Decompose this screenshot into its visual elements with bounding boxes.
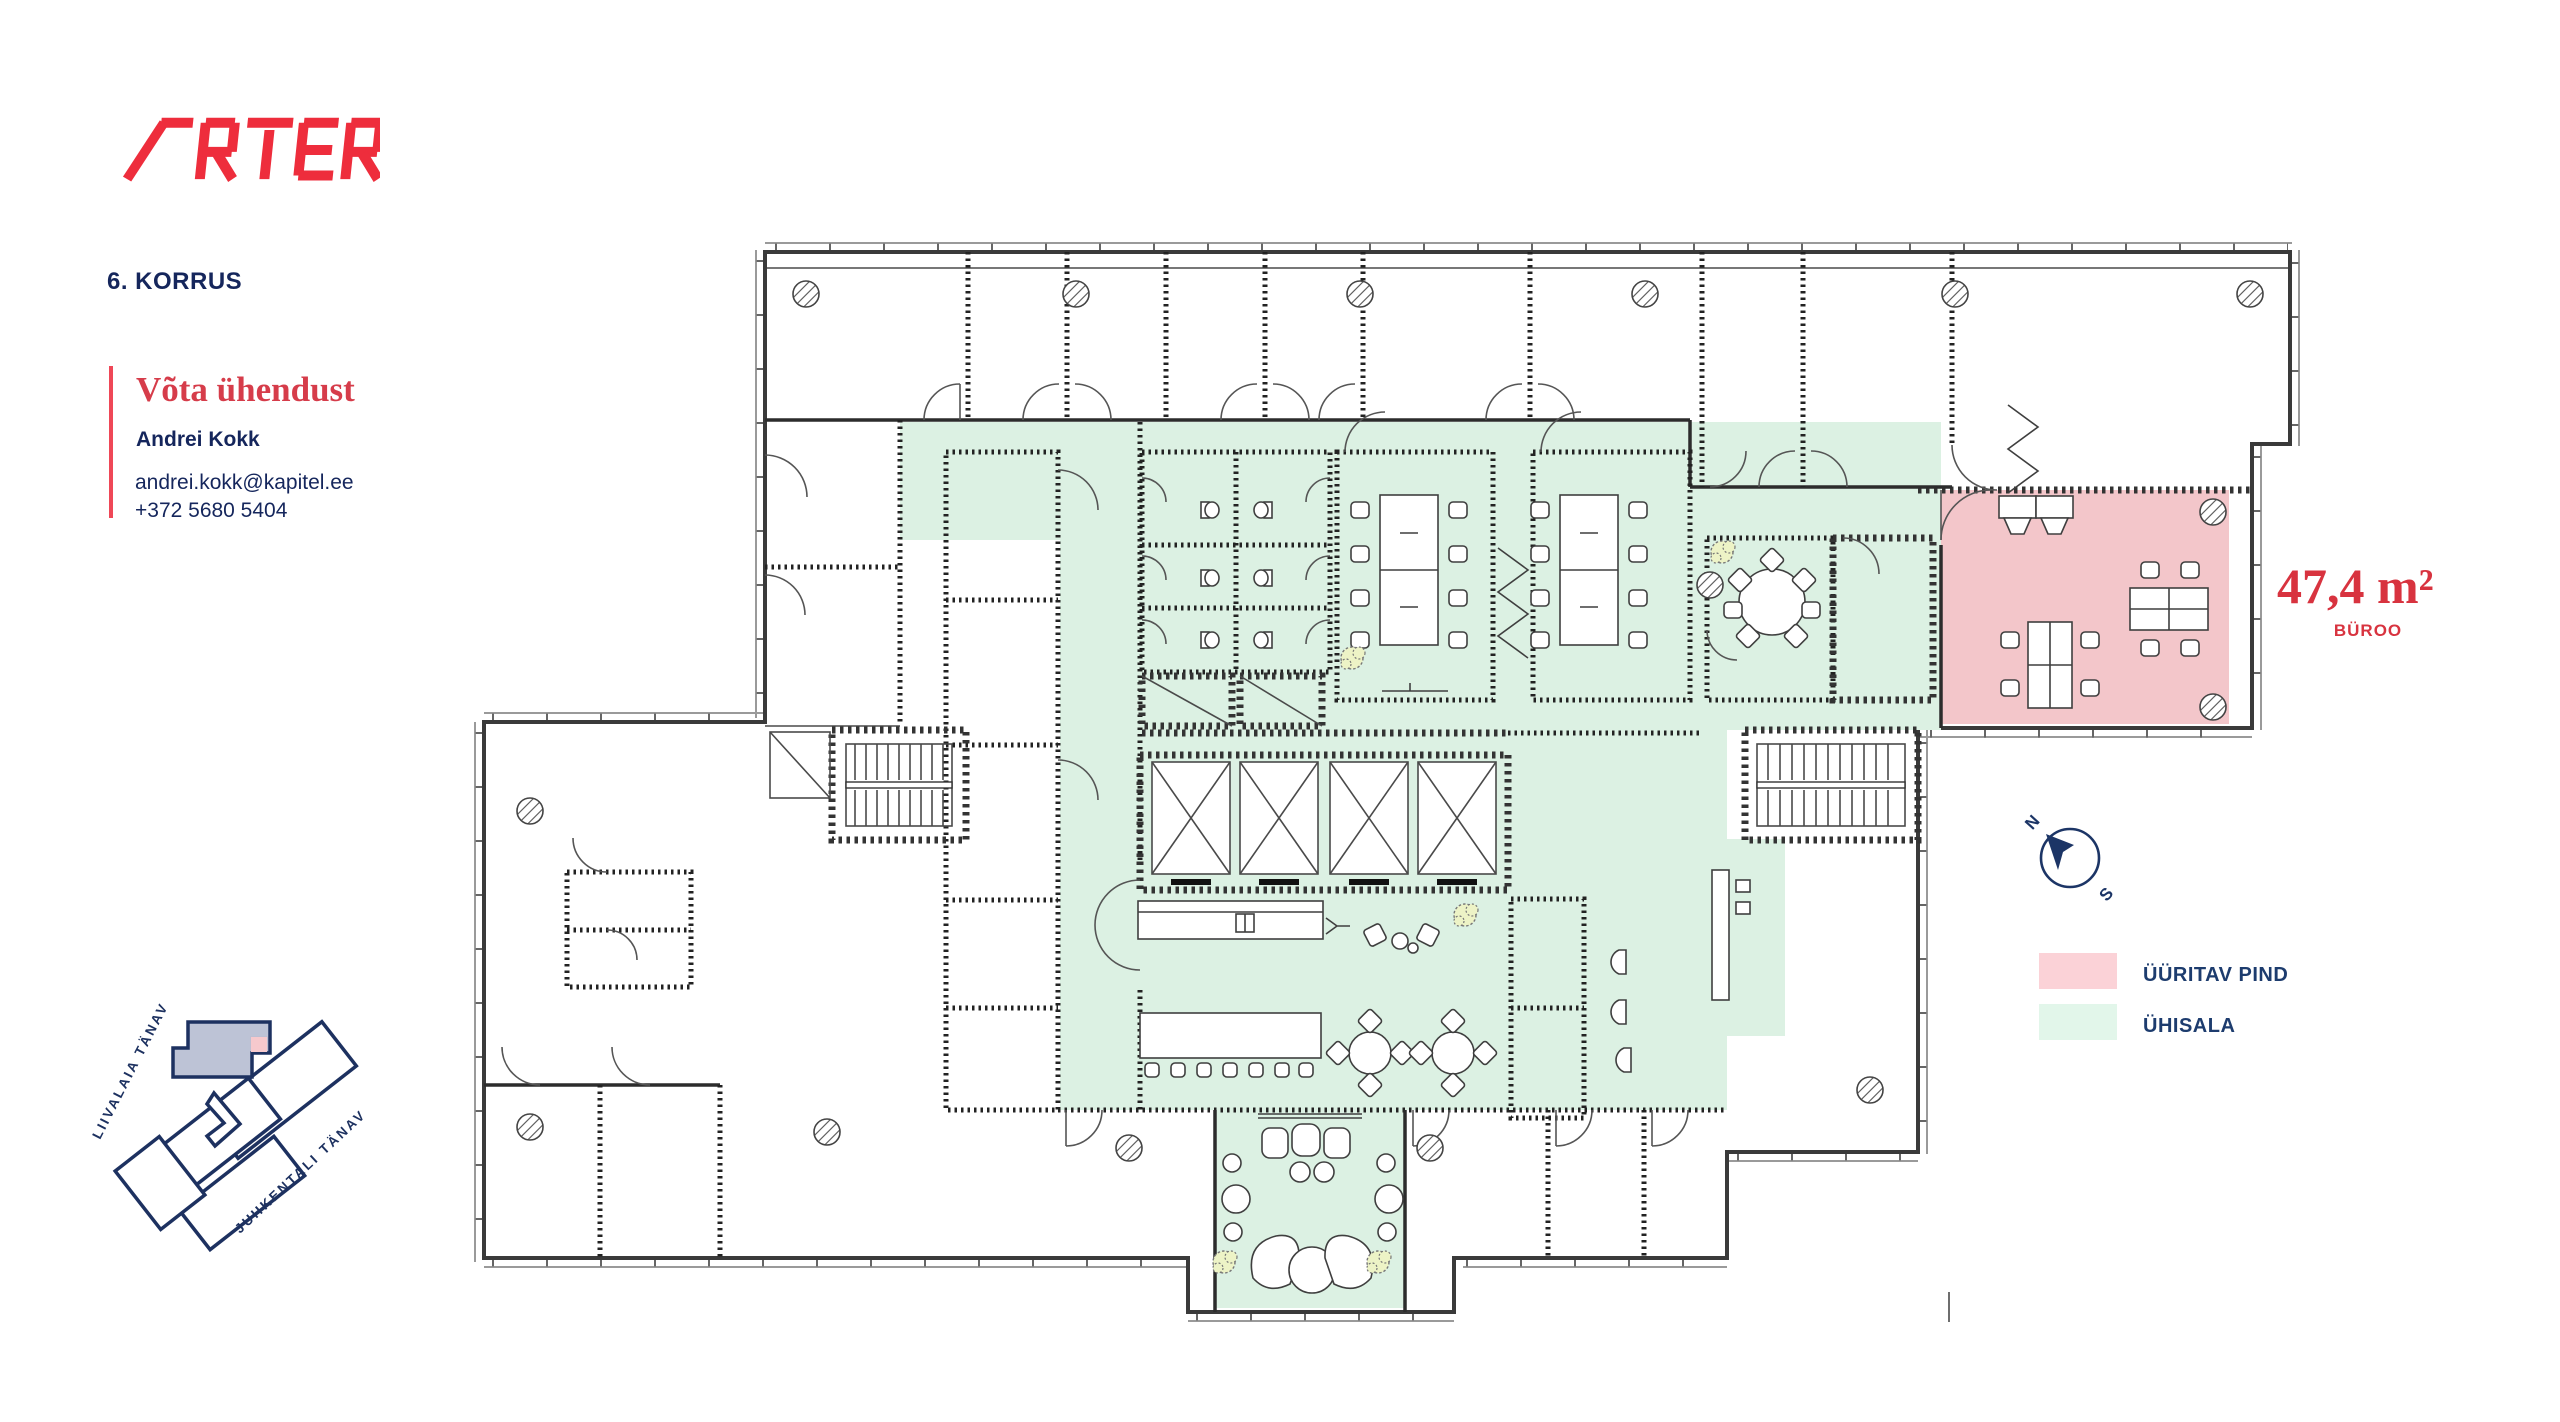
- legend-label-rentable: ÜÜRITAV PIND: [2143, 963, 2288, 986]
- site-map: LIIVALAIA TÄNAV JUHKENTALI TÄNAV: [89, 1000, 369, 1250]
- legend-swatch-common: [2039, 1004, 2117, 1040]
- compass-needle-icon: [2046, 834, 2074, 870]
- legend: ÜÜRITAV PIND ÜHISALA: [2039, 953, 2288, 1040]
- area-value: 47,4 m²: [2277, 558, 2434, 614]
- compass-north-label: N: [2021, 811, 2043, 833]
- legend-swatch-rentable: [2039, 953, 2117, 989]
- street-label-liivalaia: LIIVALAIA TÄNAV: [89, 1000, 171, 1142]
- unit-label: 47,4 m² BÜROO: [2277, 558, 2434, 640]
- brochure-page: 6. KORRUS Võta ühendust Andrei Kokk andr…: [0, 0, 2560, 1422]
- floor-plan: N S ÜÜRITAV PIND ÜHISALA 47,4 m² BÜROO: [0, 0, 2560, 1422]
- staircase-right: [1745, 730, 1918, 840]
- legend-label-common: ÜHISALA: [2143, 1014, 2235, 1037]
- staircase-left: [770, 730, 966, 840]
- area-type: BÜROO: [2334, 621, 2402, 640]
- rentable-area-office: [1918, 490, 2252, 728]
- north-compass: N S: [2021, 811, 2117, 904]
- compass-south-label: S: [2096, 884, 2118, 905]
